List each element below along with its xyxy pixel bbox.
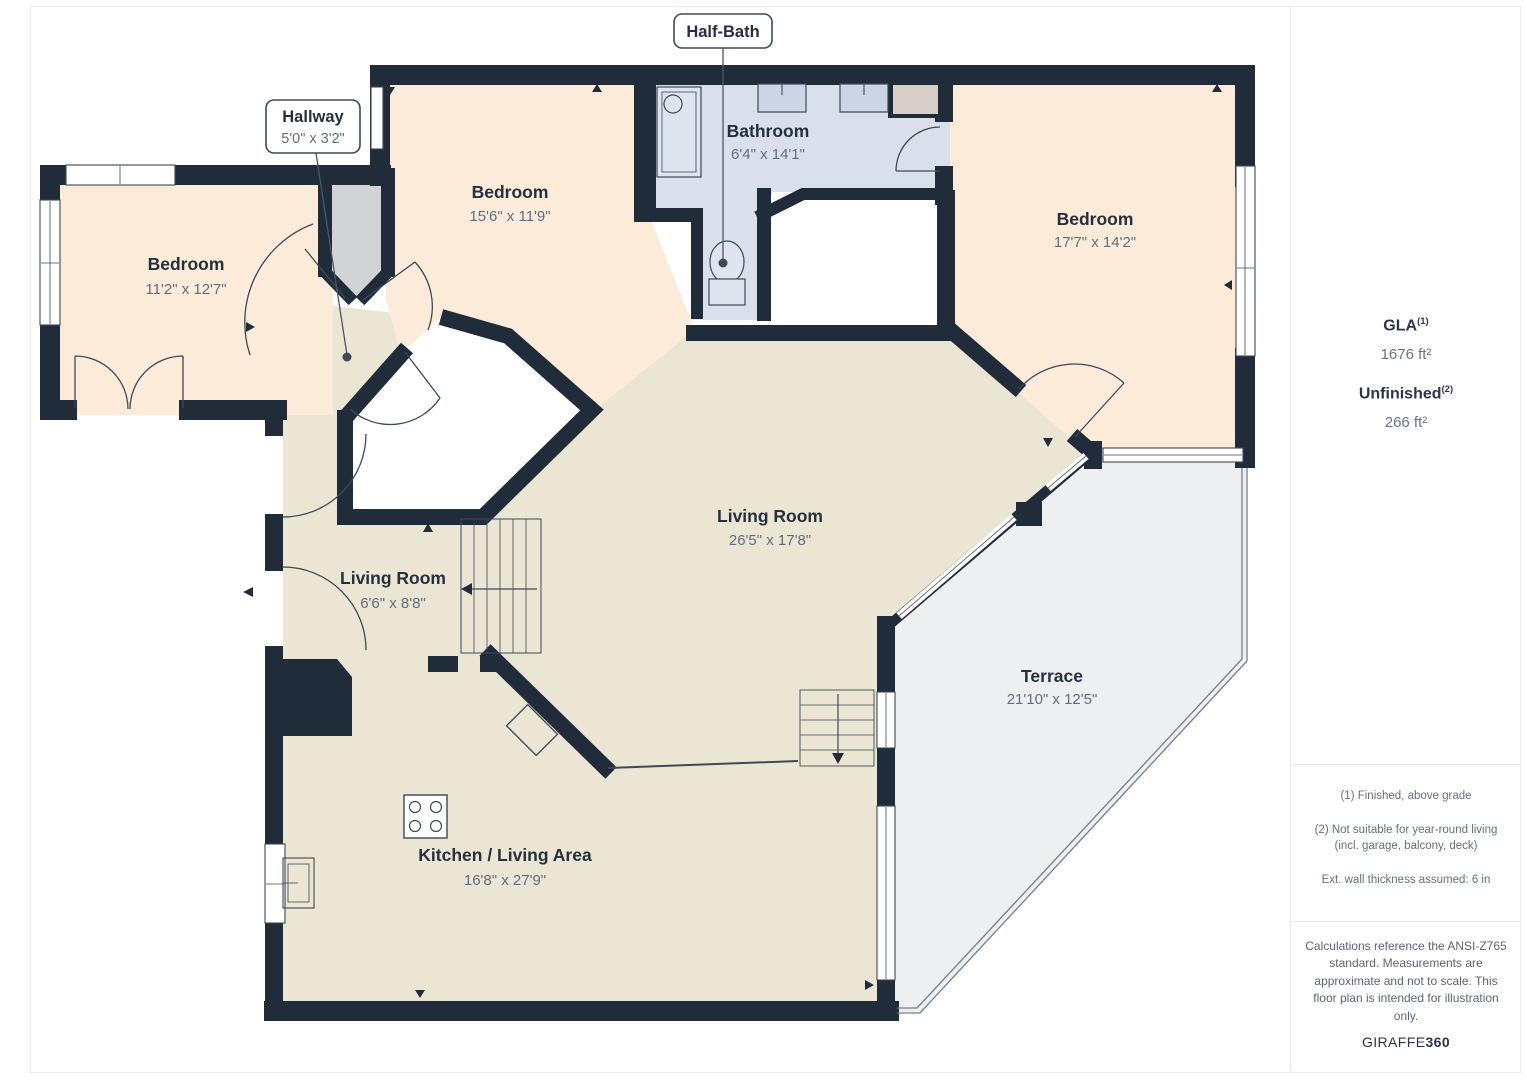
window bbox=[371, 87, 383, 149]
sidebar-divider bbox=[1292, 921, 1521, 922]
bathroom-dims: 6'4" x 14'1" bbox=[731, 146, 805, 163]
unfinished-footnote-ref: (2) bbox=[1442, 384, 1454, 395]
floorplan-drawing: Half-Bath Hallway 5'0" x 3'2" Bedroom 11… bbox=[0, 0, 1290, 1080]
gla-footnote-ref: (1) bbox=[1417, 316, 1429, 327]
stove bbox=[404, 795, 447, 838]
bedroom-left-dims: 11'2" x 12'7" bbox=[145, 281, 226, 298]
window bbox=[1236, 166, 1255, 356]
living-room-small-label: Living Room bbox=[340, 568, 446, 588]
logo-secondary: 360 bbox=[1425, 1034, 1450, 1050]
footnotes: (1) Finished, above grade (2) Not suitab… bbox=[1291, 788, 1521, 906]
footnote-1: (1) Finished, above grade bbox=[1304, 788, 1508, 805]
living-room-main-dims: 26'5" x 17'8" bbox=[729, 532, 811, 549]
window bbox=[66, 165, 175, 185]
bedroom-top-label: Bedroom bbox=[472, 182, 549, 202]
living-room-main-label: Living Room bbox=[717, 506, 823, 526]
window bbox=[265, 844, 285, 923]
half-bath-label: Half-Bath bbox=[686, 23, 759, 41]
gla-label: GLA(1) bbox=[1291, 316, 1521, 335]
gla-metric: GLA(1) 1676 ft² bbox=[1291, 316, 1521, 363]
terrace-dims: 21'10" x 12'5" bbox=[1007, 691, 1098, 708]
sidebar-divider bbox=[1292, 764, 1521, 765]
unfinished-value: 266 ft² bbox=[1291, 414, 1521, 431]
fireplace-block bbox=[265, 659, 352, 736]
footnote-2: (2) Not suitable for year-round living (… bbox=[1304, 822, 1508, 855]
gla-value: 1676 ft² bbox=[1291, 346, 1521, 363]
room-closet bbox=[770, 194, 941, 320]
info-sidebar: GLA(1) 1676 ft² Unfinished(2) 266 ft² (1… bbox=[1290, 6, 1521, 1071]
shower bbox=[657, 87, 701, 177]
bedroom-right-label: Bedroom bbox=[1057, 209, 1134, 229]
unfinished-metric: Unfinished(2) 266 ft² bbox=[1291, 384, 1521, 431]
terrace-window-mullion bbox=[1016, 502, 1042, 526]
hallway-label: Hallway bbox=[282, 108, 344, 126]
closet-gray bbox=[893, 85, 938, 114]
logo-primary: GIRAFFE bbox=[1362, 1034, 1425, 1050]
kitchen-label: Kitchen / Living Area bbox=[418, 845, 592, 865]
hallway-dims: 5'0" x 3'2" bbox=[281, 131, 344, 147]
bedroom-top-dims: 15'6" x 11'9" bbox=[469, 208, 550, 225]
terrace-label: Terrace bbox=[1021, 666, 1083, 686]
bedroom-left-label: Bedroom bbox=[148, 254, 225, 274]
floorplan-page: Half-Bath Hallway 5'0" x 3'2" Bedroom 11… bbox=[0, 0, 1527, 1080]
sliding-door-stub bbox=[1084, 441, 1102, 469]
disclaimer-text: Calculations reference the ANSI-Z765 sta… bbox=[1303, 938, 1509, 1025]
bathroom-label: Bathroom bbox=[727, 121, 810, 141]
bedroom-right-dims: 17'7" x 14'2" bbox=[1054, 234, 1136, 251]
living-room-small-dims: 6'6" x 8'8" bbox=[360, 595, 426, 612]
footnote-3: Ext. wall thickness assumed: 6 in bbox=[1304, 872, 1508, 889]
giraffe360-logo: GIRAFFE360 bbox=[1291, 1034, 1521, 1050]
unfinished-label: Unfinished(2) bbox=[1291, 384, 1521, 403]
kitchen-dims: 16'8" x 27'9" bbox=[464, 872, 546, 889]
disclaimer-block: Calculations reference the ANSI-Z765 sta… bbox=[1291, 938, 1521, 1025]
toilet-tank bbox=[709, 279, 745, 305]
